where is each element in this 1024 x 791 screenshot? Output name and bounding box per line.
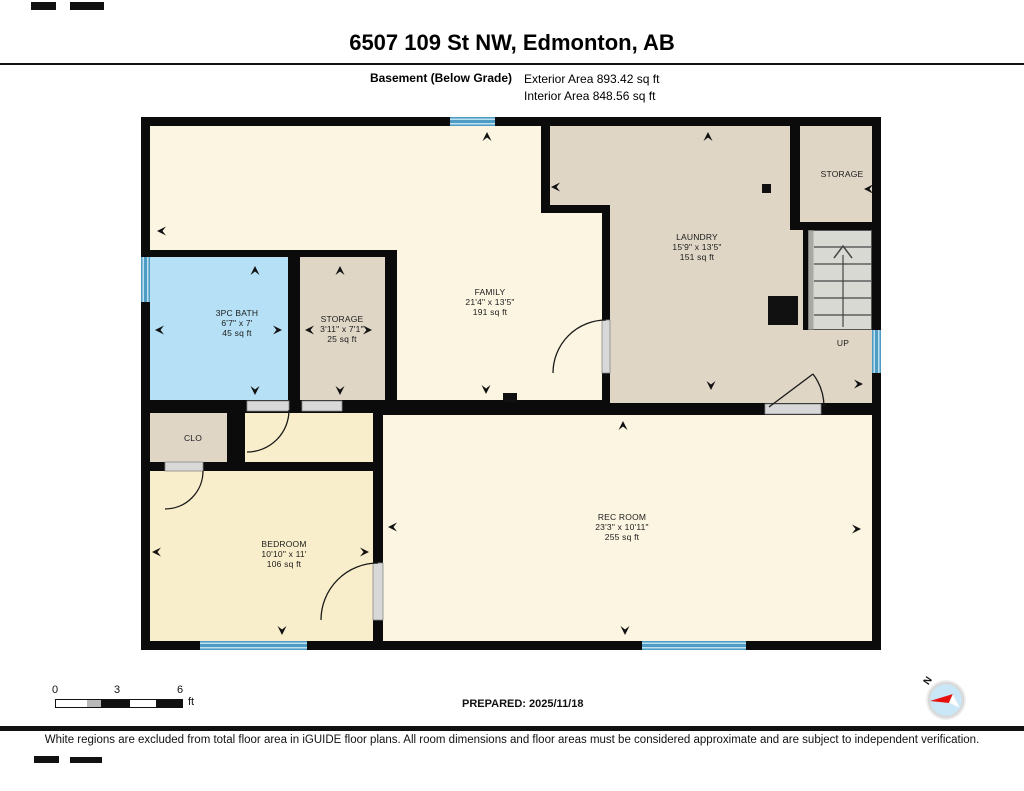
window	[200, 641, 307, 650]
room-family	[150, 126, 541, 213]
page-mark	[31, 2, 56, 10]
page-mark	[70, 2, 104, 10]
prepared-date: PREPARED: 2025/11/18	[462, 698, 583, 710]
window	[642, 641, 746, 650]
footer-divider	[0, 726, 1024, 731]
interior-area: Interior Area 848.56 sq ft	[524, 88, 659, 105]
room-bedroom	[245, 413, 373, 462]
page-mark	[70, 757, 102, 763]
page-mark	[34, 756, 59, 763]
compass-icon: N	[912, 668, 976, 728]
window	[141, 257, 150, 302]
door-bedroom	[373, 563, 383, 620]
label-storage-small: STORAGE3'11" x 7'1"25 sq ft	[320, 314, 364, 344]
door-closet	[165, 462, 203, 471]
area-summary: Exterior Area 893.42 sq ft Interior Area…	[524, 71, 659, 105]
label-bedroom: BEDROOM10'10" x 11'106 sq ft	[261, 539, 306, 569]
page-title: 6507 109 St NW, Edmonton, AB	[0, 30, 1024, 56]
room-family	[150, 213, 602, 250]
title-divider	[0, 63, 1024, 65]
label-bath: 3PC BATH6'7" x 7'45 sq ft	[216, 308, 259, 338]
scale-bar: 0 3 6 ft	[55, 684, 255, 714]
exterior-area: Exterior Area 893.42 sq ft	[524, 71, 659, 88]
scale-tick: 0	[52, 684, 58, 696]
door-storage-small	[302, 401, 342, 411]
scale-tick: 3	[114, 684, 120, 696]
door-laundry-rec	[765, 404, 821, 414]
scale-tick: 6	[177, 684, 183, 696]
door-family-laundry	[602, 320, 610, 373]
stairs-up-arrow	[834, 246, 852, 258]
stairs	[809, 231, 872, 330]
disclaimer-text: White regions are excluded from total fl…	[0, 734, 1024, 746]
room-family	[397, 250, 602, 400]
scale-unit: ft	[188, 696, 194, 708]
room-laundry	[790, 230, 803, 403]
floor-label: Basement (Below Grade)	[280, 71, 512, 85]
room-laundry	[550, 126, 790, 205]
scale-bar-segments	[55, 699, 183, 708]
label-closet: CLO	[184, 433, 202, 443]
label-rec-room: REC ROOM23'3" x 10'11"255 sq ft	[595, 512, 649, 542]
door-bath	[247, 401, 289, 411]
floorplan-canvas: 3PC BATH6'7" x 7'45 sq ft STORAGE3'11" x…	[141, 117, 881, 650]
window	[872, 330, 881, 373]
label-stairs-up: UP	[837, 338, 849, 348]
floorplan-page: 6507 109 St NW, Edmonton, AB Basement (B…	[0, 0, 1024, 791]
label-storage-topright: STORAGE	[821, 169, 864, 179]
label-family: FAMILY21'4" x 13'5"191 sq ft	[465, 287, 514, 317]
label-laundry: LAUNDRY15'9" x 13'5"151 sq ft	[672, 232, 721, 262]
window	[450, 117, 495, 126]
